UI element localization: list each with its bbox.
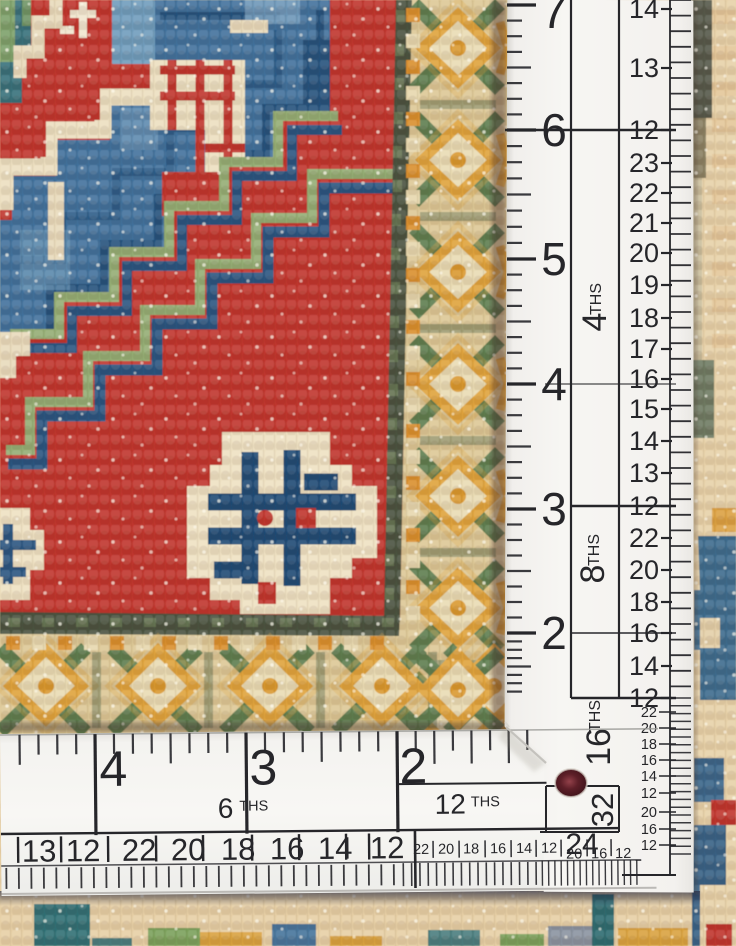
svg-text:7: 7	[541, 0, 567, 38]
svg-text:12: 12	[66, 833, 101, 868]
svg-text:16: 16	[629, 618, 659, 648]
svg-text:18: 18	[629, 587, 659, 617]
svg-text:22: 22	[629, 523, 659, 553]
svg-text:22: 22	[629, 178, 659, 208]
svg-text:20: 20	[629, 238, 659, 268]
svg-text:16: 16	[641, 753, 657, 769]
svg-text:13: 13	[629, 458, 659, 488]
svg-text:2: 2	[541, 607, 567, 659]
svg-text:12: 12	[541, 841, 557, 857]
svg-text:12: 12	[629, 115, 659, 145]
svg-text:18: 18	[629, 303, 659, 333]
svg-text:16: 16	[490, 841, 506, 857]
svg-text:17: 17	[629, 334, 659, 364]
svg-text:5: 5	[541, 233, 567, 285]
svg-text:23: 23	[629, 148, 659, 178]
svg-text:12: 12	[641, 786, 657, 802]
svg-text:22: 22	[413, 842, 429, 858]
svg-text:18: 18	[641, 737, 657, 753]
svg-text:13: 13	[22, 833, 57, 868]
svg-text:4: 4	[99, 741, 127, 797]
svg-text:16: 16	[580, 728, 618, 766]
svg-text:3: 3	[541, 483, 567, 535]
svg-text:20: 20	[641, 805, 657, 821]
svg-text:2: 2	[399, 738, 427, 794]
svg-text:22: 22	[122, 833, 157, 868]
svg-text:14: 14	[516, 841, 532, 857]
svg-text:14: 14	[629, 0, 659, 24]
svg-text:18: 18	[463, 841, 479, 857]
svg-text:THS: THS	[587, 700, 604, 732]
svg-text:14: 14	[629, 426, 659, 456]
svg-text:12: 12	[641, 838, 657, 854]
svg-text:19: 19	[629, 270, 659, 300]
svg-text:16: 16	[629, 364, 659, 394]
svg-text:12: 12	[370, 830, 405, 865]
svg-text:20: 20	[629, 555, 659, 585]
svg-text:21: 21	[629, 208, 659, 238]
svg-text:18: 18	[221, 832, 256, 867]
svg-text:14: 14	[629, 651, 659, 681]
svg-text:20: 20	[438, 842, 454, 858]
svg-text:20: 20	[171, 832, 206, 867]
svg-text:3: 3	[249, 739, 277, 795]
svg-text:8: 8	[574, 565, 612, 584]
svg-text:12: 12	[629, 491, 659, 521]
svg-text:THS: THS	[586, 534, 603, 566]
svg-text:32: 32	[585, 793, 620, 827]
svg-text:THS: THS	[588, 283, 605, 315]
svg-text:22: 22	[641, 705, 657, 721]
svg-text:14: 14	[641, 769, 657, 785]
svg-text:15: 15	[629, 394, 659, 424]
svg-text:13: 13	[629, 53, 659, 83]
svg-text:16: 16	[641, 822, 657, 838]
